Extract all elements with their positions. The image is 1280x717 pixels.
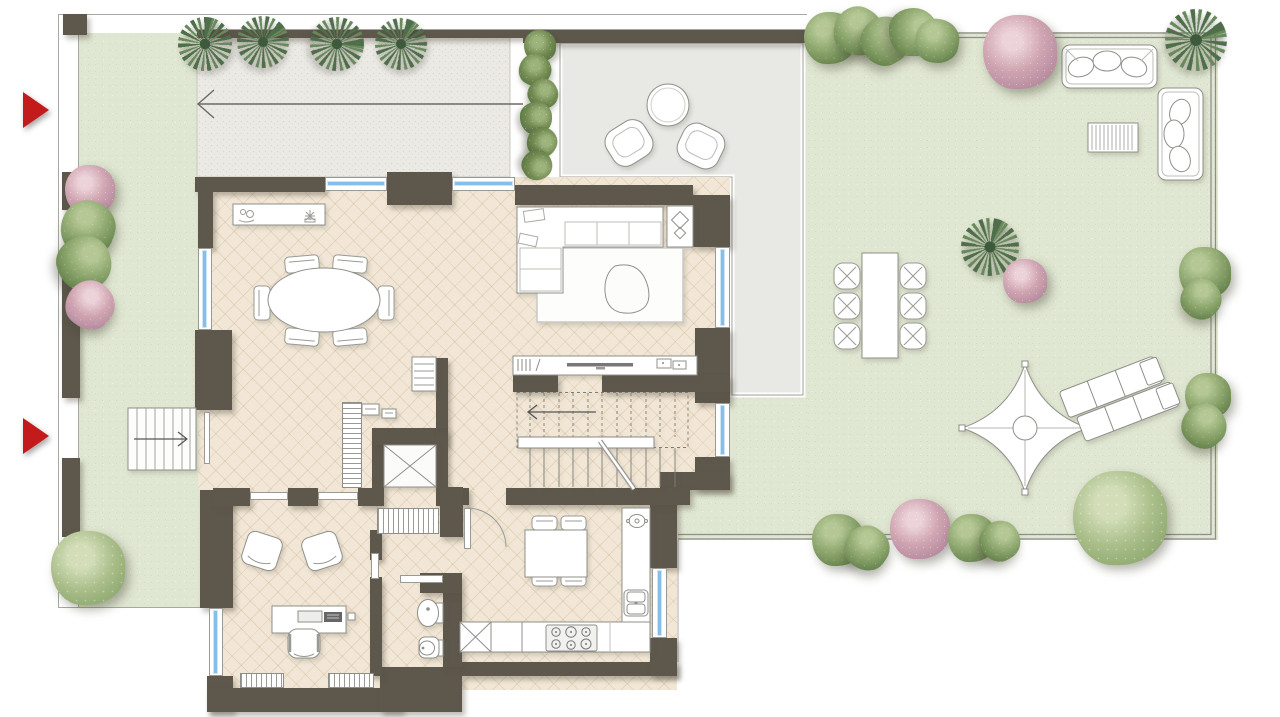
hall-wall-a	[213, 488, 250, 506]
window-office-left-glass	[214, 611, 217, 673]
door-kitchen-leaf	[464, 508, 471, 549]
window-dining-left-glass	[203, 251, 206, 327]
window-living-right-glass	[721, 250, 724, 325]
boundary-seg-3	[62, 458, 80, 537]
entrance-marker-top	[23, 92, 49, 128]
living-divider-a	[513, 375, 558, 392]
door-bathroom	[400, 575, 443, 583]
stair-wall-left-bit	[463, 488, 469, 505]
left-wall-b	[195, 330, 232, 410]
top-wall-pier	[387, 172, 452, 205]
window-stairhall-right	[715, 403, 730, 457]
terrace-top-wall	[523, 30, 807, 43]
bottom-wall-kitchen	[462, 662, 677, 676]
window-kitchen-right-glass	[658, 571, 661, 635]
palm-plant	[306, 13, 369, 76]
palm-plant	[369, 12, 433, 76]
closet-rack	[377, 508, 439, 534]
door-office-1	[250, 492, 288, 500]
window-dining-left	[198, 248, 212, 330]
window-office-left	[209, 608, 223, 676]
floor-main	[198, 177, 730, 490]
terrace-chairs	[600, 114, 730, 173]
top-wall-left	[195, 177, 325, 192]
window-dining-top-2	[452, 177, 515, 191]
pink-plant	[1003, 259, 1047, 303]
left-wall-a	[198, 192, 213, 248]
door-entrance	[204, 412, 210, 464]
palm-plant	[178, 17, 232, 71]
entrance-marker-bottom	[23, 418, 49, 454]
floor-plan-canvas	[0, 0, 1280, 717]
window-dining-top-1-glass	[328, 182, 384, 185]
radiator-office-1	[240, 673, 284, 688]
bottom-step	[380, 667, 462, 712]
left-wall-c	[200, 490, 233, 608]
window-dining-top-2-glass	[455, 182, 512, 185]
stair-column	[436, 358, 448, 428]
pink-plant	[983, 15, 1057, 89]
bath-wall-right	[443, 592, 462, 667]
top-wall-living	[515, 185, 693, 205]
door-office-2	[318, 492, 358, 500]
tree-plant	[51, 531, 125, 605]
pink-plant	[890, 499, 950, 559]
window-living-right	[715, 247, 730, 328]
stair-kitchen-wall	[506, 488, 690, 505]
pillar-top-left	[63, 14, 87, 35]
palm-plant	[226, 5, 299, 78]
bottom-wall-office	[207, 688, 402, 712]
bath-wall-left-b	[370, 577, 382, 676]
right-wall-a	[693, 195, 730, 247]
window-dining-top-1	[325, 177, 387, 191]
window-stairhall-right-glass	[721, 406, 724, 454]
radiator-office-2	[328, 673, 374, 688]
door-office-bath	[371, 553, 379, 579]
closet-wall	[440, 487, 463, 537]
kitchen-right-wall-b	[650, 638, 677, 676]
driveway-arrow	[198, 90, 523, 118]
living-divider-b	[602, 375, 730, 392]
terrace-round-table	[647, 84, 689, 126]
hall-wall-c	[358, 488, 373, 506]
window-kitchen-right	[652, 568, 667, 638]
hall-wall-b	[288, 488, 318, 506]
radiator-hall	[342, 402, 362, 488]
tree-plant	[1073, 471, 1167, 565]
